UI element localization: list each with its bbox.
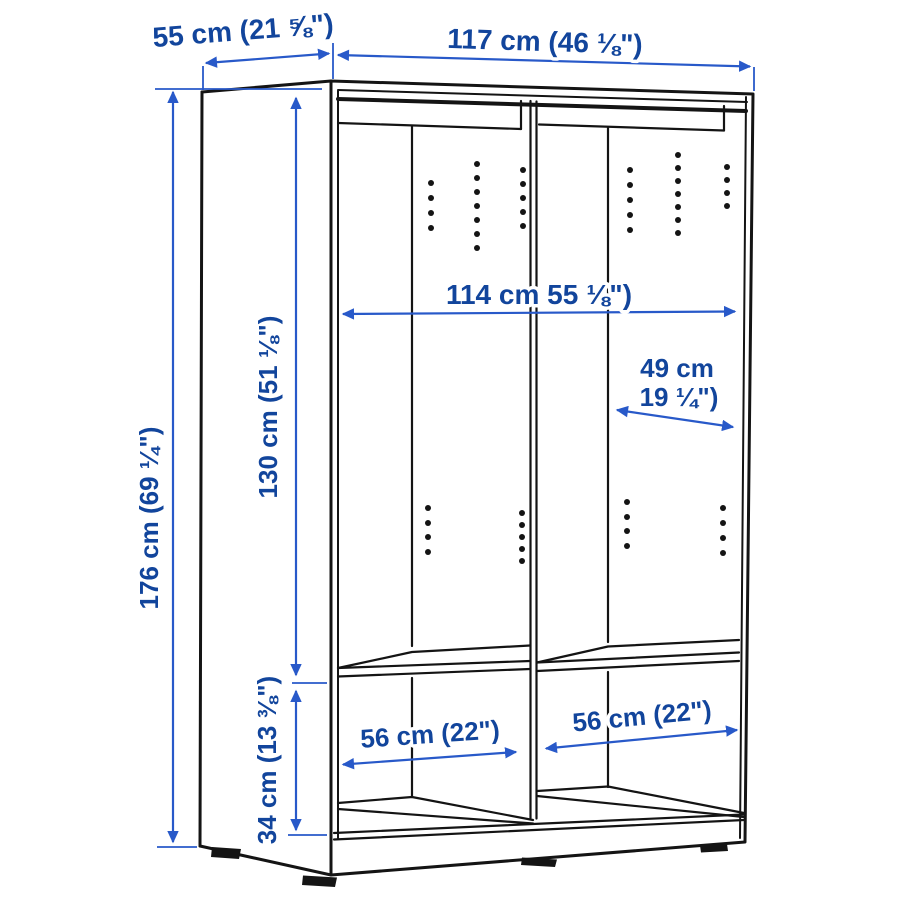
dim-label-interior-width-114: 114 cm 55 ⅛") <box>446 279 632 310</box>
dim-height-176: 176 cm (69 ¼") <box>134 92 173 842</box>
dim-label-interior-height-34: 34 cm (13 ⅜") <box>252 676 282 844</box>
dim-interior-depth-49: 49 cm 19 ¼") <box>617 353 733 427</box>
dim-label-width-117: 117 cm (46 ⅛") <box>447 23 643 60</box>
dim-interior-width-114: 114 cm 55 ⅛") <box>343 279 735 314</box>
dimension-annotations: 176 cm (69 ¼") 55 cm (21 ⅝") 117 cm (46 … <box>134 8 754 847</box>
dim-label-height-176: 176 cm (69 ¼") <box>134 427 164 610</box>
shelf-left <box>338 646 530 677</box>
dim-interior-height-130: 130 cm (51 ⅛") <box>253 98 296 675</box>
wardrobe-dimension-diagram: 176 cm (69 ¼") 55 cm (21 ⅝") 117 cm (46 … <box>0 0 900 900</box>
front-frame <box>331 81 753 875</box>
dim-width-117: 117 cm (46 ⅛") <box>338 23 750 67</box>
dim-depth-55: 55 cm (21 ⅝") <box>151 8 334 63</box>
dim-label-compartment-right-56: 56 cm (22") <box>571 694 713 737</box>
dim-label-depth-55: 55 cm (21 ⅝") <box>151 8 334 53</box>
dim-compartment-width-right-56: 56 cm (22") <box>546 694 737 748</box>
shelf-right <box>537 640 739 671</box>
dim-compartment-width-left-56: 56 cm (22") <box>343 714 516 764</box>
dim-label-compartment-left-56: 56 cm (22") <box>359 714 500 754</box>
dim-label-interior-depth-49-line1: 49 cm <box>640 353 714 383</box>
dim-label-interior-height-130: 130 cm (51 ⅛") <box>253 316 283 499</box>
wardrobe-line-drawing: 176 cm (69 ¼") 55 cm (21 ⅝") 117 cm (46 … <box>0 0 900 900</box>
dim-label-interior-depth-49-line2: 19 ¼") <box>640 382 719 412</box>
sliding-door-track-bottom <box>334 815 744 840</box>
center-partition <box>531 101 537 819</box>
back-corner-edges <box>412 126 608 797</box>
dim-interior-height-34: 34 cm (13 ⅜") <box>252 676 296 844</box>
